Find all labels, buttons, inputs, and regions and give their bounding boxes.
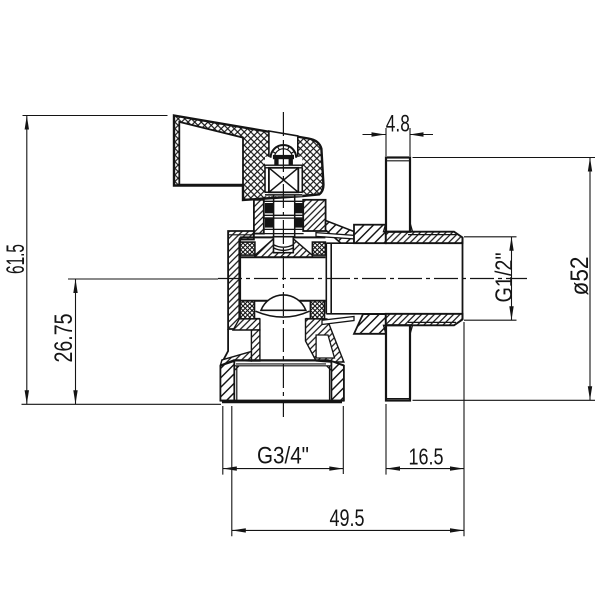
- svg-text:16.5: 16.5: [409, 444, 444, 470]
- svg-text:49.5: 49.5: [330, 505, 365, 532]
- svg-text:G1/2": G1/2": [491, 253, 518, 303]
- svg-text:26.75: 26.75: [50, 314, 78, 363]
- svg-text:G3/4": G3/4": [257, 443, 309, 470]
- svg-text:ø52: ø52: [566, 257, 594, 296]
- svg-text:4.8: 4.8: [386, 110, 410, 137]
- svg-text:61.5: 61.5: [2, 244, 30, 274]
